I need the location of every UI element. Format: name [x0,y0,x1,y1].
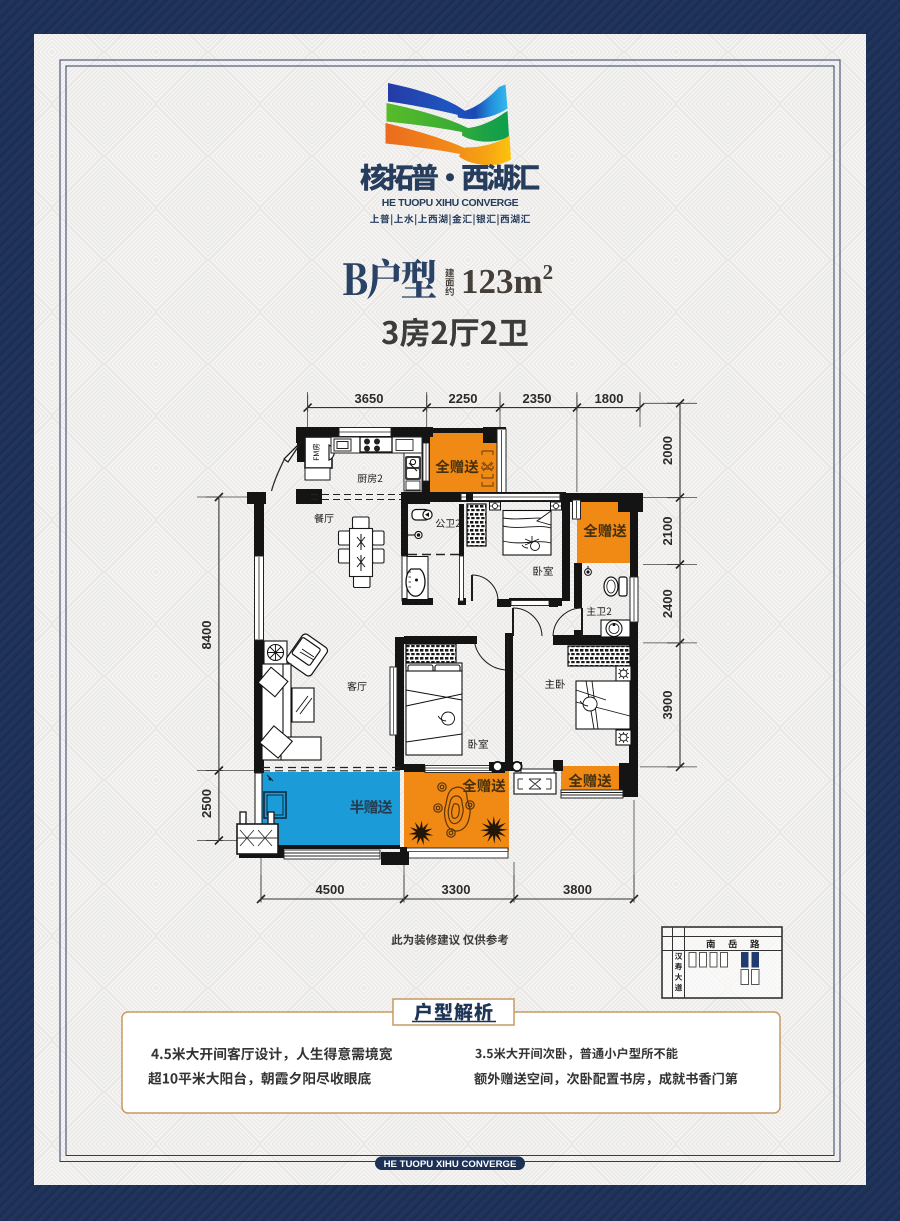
svg-text:3650: 3650 [355,391,384,406]
svg-text:2000: 2000 [660,436,675,465]
svg-text:4500: 4500 [316,882,345,897]
svg-text:HE TUOPU XIHU CONVERGE: HE TUOPU XIHU CONVERGE [382,197,519,209]
svg-text:3800: 3800 [563,882,592,897]
svg-text:3300: 3300 [442,882,471,897]
svg-text:1800: 1800 [595,391,624,406]
svg-text:2100: 2100 [660,517,675,546]
svg-text:HE TUOPU XIHU CONVERGE: HE TUOPU XIHU CONVERGE [384,1159,517,1170]
svg-text:8400: 8400 [199,621,214,650]
svg-text:2350: 2350 [523,391,552,406]
svg-text:3900: 3900 [660,691,675,720]
svg-text:123m2: 123m2 [461,260,553,301]
svg-text:2500: 2500 [199,789,214,818]
svg-text:2400: 2400 [660,589,675,618]
svg-text:2250: 2250 [449,391,478,406]
